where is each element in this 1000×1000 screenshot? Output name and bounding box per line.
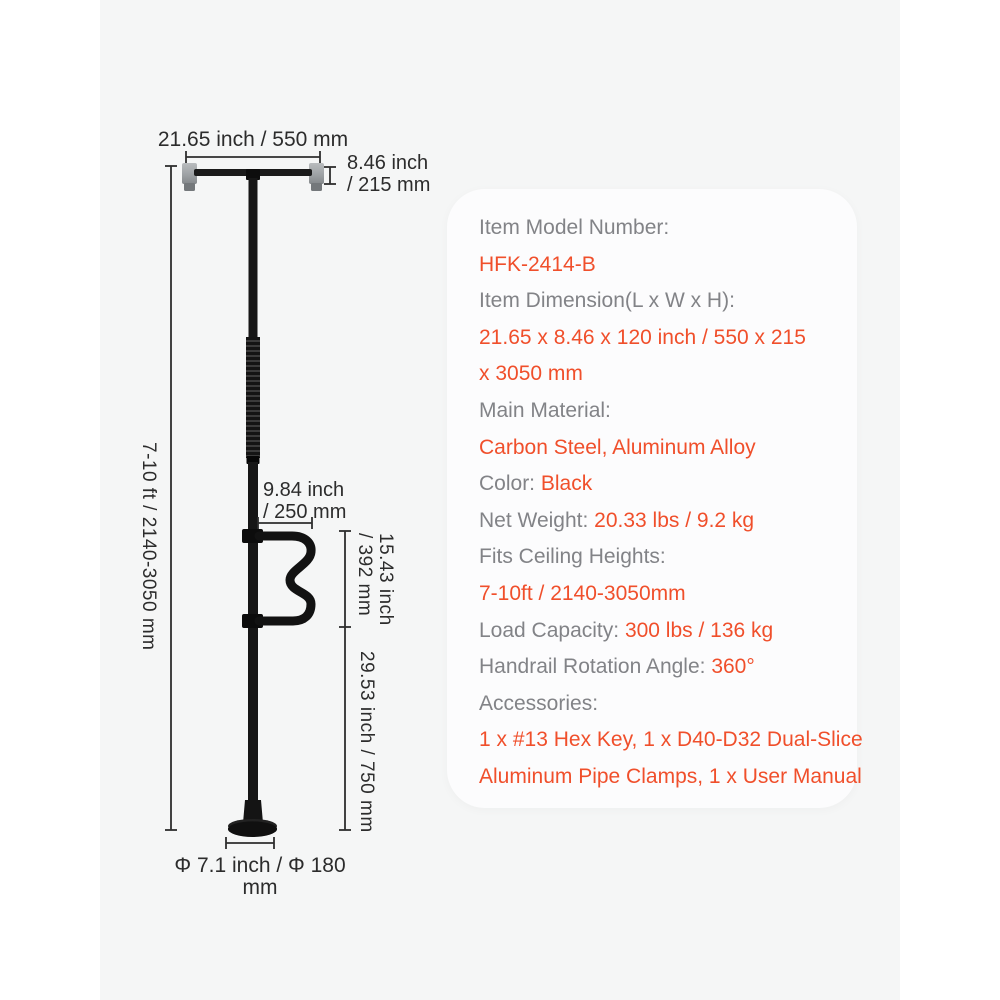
spec-label: Item Model Number: (479, 216, 669, 239)
pole-lower (248, 462, 258, 824)
spec-label: Handrail Rotation Angle: (479, 655, 705, 678)
base-disc-edge (228, 821, 277, 836)
spec-line-weight: Net Weight: 20.33 lbs / 9.2 kg (479, 503, 833, 540)
dim-label-total-height: 7-10 ft / 2140-3050 mm (138, 442, 159, 651)
spec-value: 20.33 lbs / 9.2 kg (594, 509, 754, 532)
ceiling-pad-right (309, 163, 324, 191)
dim-label-top-depth: 8.46 inch / 215 mm (347, 152, 430, 196)
dim-label-base-diameter: Φ 7.1 inch / Φ 180 mm (160, 855, 360, 899)
spec-label: Item Dimension(L x W x H): (479, 289, 735, 312)
spec-value: Carbon Steel, Aluminum Alloy (479, 436, 756, 459)
spec-line-load-capacity: Load Capacity: 300 lbs / 136 kg (479, 613, 833, 650)
handrail (259, 536, 311, 621)
spec-label: Net Weight: (479, 509, 588, 532)
pole-upper (249, 178, 258, 340)
spec-line-dimension-label: Item Dimension(L x W x H): (479, 283, 833, 320)
spec-label: Load Capacity: (479, 619, 619, 642)
dim-label-lower-height: 29.53 inch / 750 mm (356, 651, 377, 833)
spec-panel: Item Model Number: HFK-2414-B Item Dimen… (447, 189, 857, 808)
spec-line-rotation-angle: Handrail Rotation Angle: 360° (479, 649, 833, 686)
spec-value: HFK-2414-B (479, 253, 596, 276)
spec-value: Black (541, 472, 592, 495)
dim-label-handle-length: 9.84 inch / 250 mm (263, 479, 346, 523)
ceiling-pad-left (182, 163, 197, 191)
spec-line-accessories-value-2: Aluminum Pipe Clamps, 1 x User Manual (479, 759, 833, 796)
spec-value: x 3050 mm (479, 362, 583, 385)
spec-label: Fits Ceiling Heights: (479, 545, 666, 568)
pole-grip-ribbed (246, 337, 260, 458)
spec-line-model-value: HFK-2414-B (479, 247, 833, 284)
spec-line-ceiling-value: 7-10ft / 2140-3050mm (479, 576, 833, 613)
spec-value: 7-10ft / 2140-3050mm (479, 582, 686, 605)
spec-value: 1 x #13 Hex Key, 1 x D40-D32 Dual-Slice (479, 728, 863, 751)
dim-label-top-width: 21.65 inch / 550 mm (153, 129, 353, 151)
spec-line-model-label: Item Model Number: (479, 210, 833, 247)
spec-line-accessories-label: Accessories: (479, 686, 833, 723)
spec-line-color: Color: Black (479, 466, 833, 503)
spec-line-ceiling-label: Fits Ceiling Heights: (479, 539, 833, 576)
spec-value: Aluminum Pipe Clamps, 1 x User Manual (479, 765, 862, 788)
spec-label: Main Material: (479, 399, 611, 422)
spec-line-dimension-value-1: 21.65 x 8.46 x 120 inch / 550 x 215 (479, 320, 833, 357)
spec-line-dimension-value-2: x 3050 mm (479, 356, 833, 393)
spec-label: Color: (479, 472, 541, 495)
dim-label-handle-height: 15.43 inch / 392 mm (354, 533, 396, 626)
spec-line-material-value: Carbon Steel, Aluminum Alloy (479, 430, 833, 467)
spec-value: 21.65 x 8.46 x 120 inch / 550 x 215 (479, 326, 806, 349)
spec-label: Accessories: (479, 692, 598, 715)
spec-line-material-label: Main Material: (479, 393, 833, 430)
product-spec-image: 21.65 inch / 550 mm 8.46 inch / 215 mm 7… (0, 0, 1000, 1000)
spec-line-accessories-value-1: 1 x #13 Hex Key, 1 x D40-D32 Dual-Slice (479, 722, 833, 759)
spec-value: 300 lbs / 136 kg (625, 619, 773, 642)
spec-value: 360° (711, 655, 754, 678)
